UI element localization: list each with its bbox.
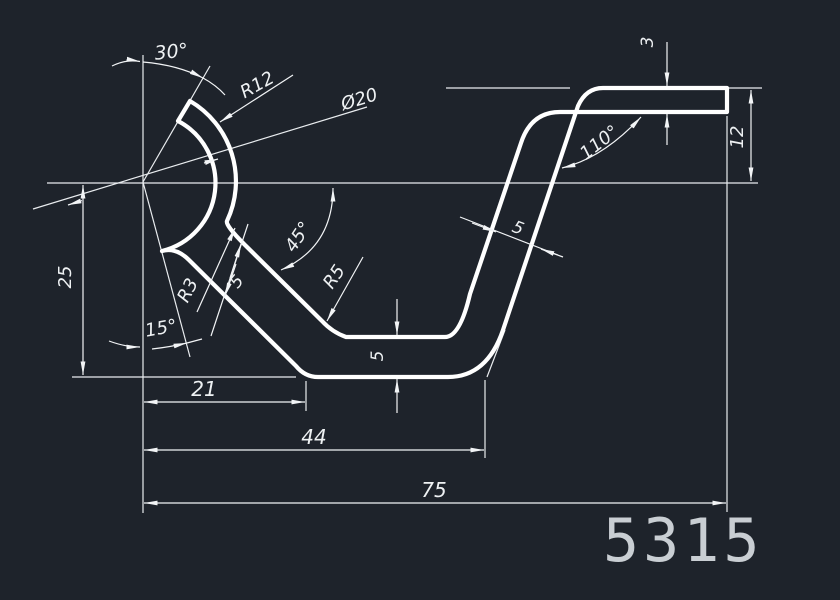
drawing-svg: 30° R12 Ø20 110° 3 12 25 45° R5 R3 5 5 5… xyxy=(0,0,840,600)
label-thickness-3: 3 xyxy=(638,37,658,48)
part-number: 5315 xyxy=(603,506,764,576)
cad-drawing-canvas[interactable]: 30° R12 Ø20 110° 3 12 25 45° R5 R3 5 5 5… xyxy=(0,0,840,600)
label-height-12: 12 xyxy=(727,126,748,149)
label-height-25: 25 xyxy=(55,266,76,289)
label-width-21: 21 xyxy=(191,377,216,401)
label-angle-30: 30° xyxy=(153,39,189,64)
label-width-75: 75 xyxy=(421,478,446,502)
label-width-44: 44 xyxy=(301,425,326,449)
label-thickness-5-bottom: 5 xyxy=(368,351,388,362)
